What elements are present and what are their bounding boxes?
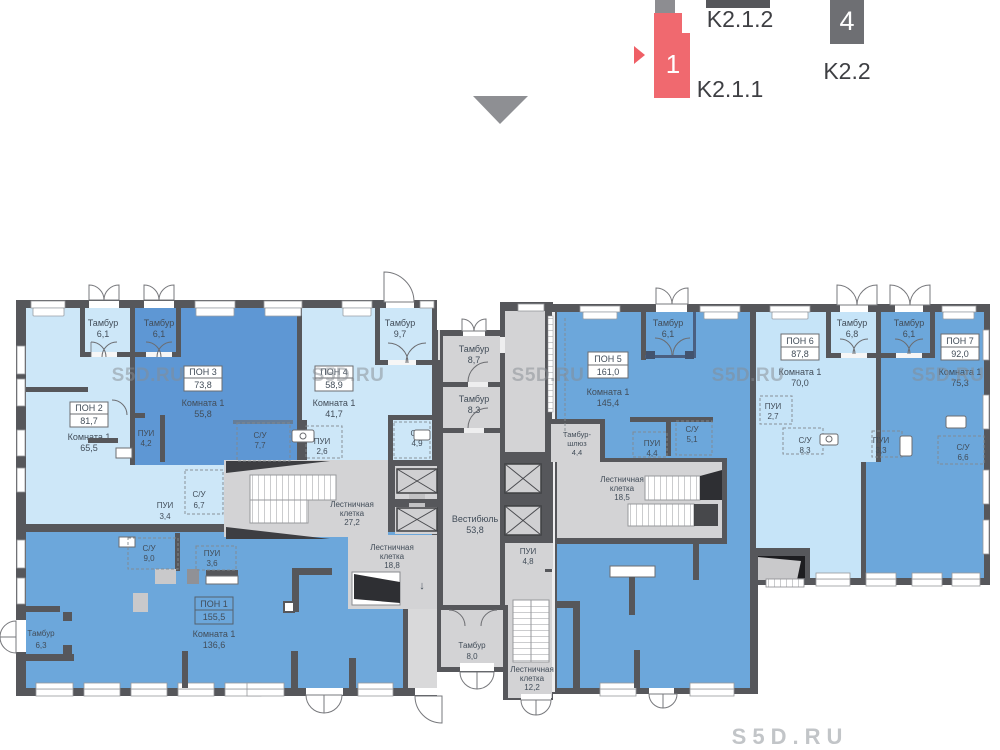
svg-text:70,0: 70,0 [791, 378, 809, 388]
svg-text:ПОН 2: ПОН 2 [75, 403, 102, 413]
svg-text:С/У: С/У [192, 490, 206, 499]
svg-text:шлюз: шлюз [567, 439, 587, 448]
svg-text:Тамбур: Тамбур [88, 318, 119, 328]
svg-text:12,2: 12,2 [524, 683, 540, 692]
svg-text:5,1: 5,1 [686, 435, 698, 444]
svg-text:S5D.RU: S5D.RU [912, 365, 985, 386]
svg-text:ПОН 5: ПОН 5 [594, 354, 621, 364]
svg-text:Тамбур: Тамбур [653, 318, 684, 328]
svg-text:С/У: С/У [685, 425, 699, 434]
svg-text:145,4: 145,4 [597, 398, 620, 408]
svg-text:Вестибюль: Вестибюль [452, 514, 499, 524]
svg-text:136,6: 136,6 [203, 640, 226, 650]
svg-text:8,7: 8,7 [468, 355, 481, 365]
svg-text:Лестничная: Лестничная [370, 543, 414, 552]
svg-text:1: 1 [666, 49, 680, 79]
svg-text:Тамбур: Тамбур [458, 641, 486, 650]
svg-text:С/У: С/У [142, 544, 156, 553]
svg-text:6,1: 6,1 [903, 329, 916, 339]
svg-text:клетка: клетка [340, 509, 365, 518]
svg-text:81,7: 81,7 [80, 416, 98, 426]
svg-text:4: 4 [839, 6, 854, 36]
svg-text:ПУИ: ПУИ [520, 547, 537, 556]
svg-text:Лестничная: Лестничная [330, 500, 374, 509]
svg-text:S5D.RU: S5D.RU [312, 365, 385, 386]
svg-text:65,5: 65,5 [80, 443, 98, 453]
svg-text:3,3: 3,3 [875, 446, 887, 455]
svg-text:ПОН 6: ПОН 6 [786, 336, 813, 346]
svg-text:18,8: 18,8 [384, 561, 400, 570]
svg-text:92,0: 92,0 [951, 349, 969, 359]
svg-text:Тамбур: Тамбур [837, 318, 868, 328]
svg-text:4,2: 4,2 [140, 439, 152, 448]
svg-text:С/У: С/У [253, 431, 267, 440]
svg-text:Тамбур-: Тамбур- [563, 430, 591, 439]
svg-text:4,8: 4,8 [522, 557, 534, 566]
svg-text:клетка: клетка [380, 552, 405, 561]
svg-text:Лестничная: Лестничная [600, 475, 644, 484]
svg-text:ПУИ: ПУИ [157, 501, 174, 510]
svg-text:Комната 1: Комната 1 [182, 398, 225, 408]
svg-text:S5D.RU: S5D.RU [112, 365, 185, 386]
svg-text:ПУИ: ПУИ [873, 436, 890, 445]
svg-text:ПУИ: ПУИ [765, 402, 782, 411]
svg-text:18,5: 18,5 [614, 493, 630, 502]
svg-text:9,7: 9,7 [394, 329, 407, 339]
svg-text:6,3: 6,3 [35, 641, 47, 650]
svg-text:Тамбур: Тамбур [385, 318, 416, 328]
svg-text:3,4: 3,4 [159, 512, 171, 521]
svg-text:С/У: С/У [798, 436, 812, 445]
svg-text:41,7: 41,7 [325, 409, 343, 419]
svg-text:K2.1.1: K2.1.1 [697, 76, 764, 102]
svg-text:27,2: 27,2 [344, 518, 360, 527]
svg-text:Комната 1: Комната 1 [779, 367, 822, 377]
svg-text:4,4: 4,4 [572, 448, 582, 457]
svg-text:S5D.RU: S5D.RU [712, 365, 785, 386]
svg-text:ПУИ: ПУИ [138, 429, 155, 438]
svg-text:ПОН 3: ПОН 3 [189, 367, 216, 377]
svg-text:7,7: 7,7 [254, 441, 266, 450]
svg-text:ПУИ: ПУИ [644, 439, 661, 448]
svg-text:Тамбур: Тамбур [459, 394, 490, 404]
svg-text:2,6: 2,6 [316, 447, 328, 456]
svg-text:ПОН 1: ПОН 1 [200, 599, 227, 609]
svg-text:Тамбур: Тамбур [144, 318, 175, 328]
svg-text:ПОН 7: ПОН 7 [946, 336, 973, 346]
svg-text:Тамбур: Тамбур [27, 629, 55, 638]
svg-text:9,0: 9,0 [143, 554, 155, 563]
svg-text:8,0: 8,0 [466, 652, 478, 661]
svg-text:73,8: 73,8 [194, 380, 212, 390]
svg-text:↓: ↓ [419, 580, 425, 592]
svg-text:6,1: 6,1 [662, 329, 675, 339]
svg-text:3,6: 3,6 [206, 559, 218, 568]
svg-text:S5D.RU: S5D.RU [512, 365, 585, 386]
svg-text:6,6: 6,6 [957, 453, 969, 462]
svg-text:Комната 1: Комната 1 [313, 398, 356, 408]
svg-text:K2.1.2: K2.1.2 [707, 6, 774, 32]
svg-text:6,7: 6,7 [193, 501, 205, 510]
svg-text:6,8: 6,8 [846, 329, 859, 339]
svg-text:Лестничная: Лестничная [510, 665, 554, 674]
svg-text:клетка: клетка [610, 484, 635, 493]
svg-text:6,1: 6,1 [97, 329, 110, 339]
svg-text:Тамбур: Тамбур [459, 344, 490, 354]
svg-text:6,1: 6,1 [153, 329, 166, 339]
svg-text:55,8: 55,8 [194, 409, 212, 419]
svg-text:155,5: 155,5 [203, 612, 226, 622]
svg-text:Тамбур: Тамбур [894, 318, 925, 328]
svg-text:клетка: клетка [520, 674, 545, 683]
svg-text:87,8: 87,8 [791, 349, 809, 359]
svg-text:S5D.RU: S5D.RU [732, 724, 849, 749]
svg-text:161,0: 161,0 [597, 367, 620, 377]
svg-text:ПУИ: ПУИ [314, 437, 331, 446]
svg-text:53,8: 53,8 [466, 525, 484, 535]
svg-text:K2.2: K2.2 [823, 58, 870, 84]
svg-text:Комната 1: Комната 1 [587, 387, 630, 397]
svg-text:С/У: С/У [956, 443, 970, 452]
svg-text:2,7: 2,7 [767, 412, 779, 421]
svg-text:ПУИ: ПУИ [204, 549, 221, 558]
svg-text:Комната 1: Комната 1 [193, 629, 236, 639]
